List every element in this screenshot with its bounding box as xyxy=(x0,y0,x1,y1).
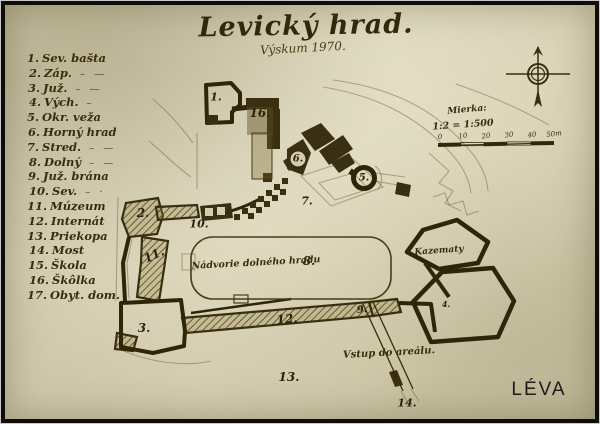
legend-item: 3.Juž.– — xyxy=(28,81,128,96)
map-label-13: 13. xyxy=(279,370,300,384)
legend-item-label: Sev. xyxy=(52,184,77,198)
legend-item-number: 4. xyxy=(29,95,41,109)
map-label-14: 14. xyxy=(397,397,416,410)
map-label-4: 4. xyxy=(442,299,450,309)
legend-item-label: Dolný xyxy=(44,155,81,169)
legend-item-label: Škôlka xyxy=(52,273,96,287)
map-label-16: 16. xyxy=(250,106,271,120)
map-label-3: 3. xyxy=(138,321,151,335)
legend-item-number: 8. xyxy=(29,155,41,169)
legend-item-label: Múzeum xyxy=(50,199,105,213)
legend-item: 12.Internát xyxy=(28,214,128,229)
bridge-14 xyxy=(389,370,403,387)
scale-tick: 30 xyxy=(504,130,514,139)
legend-item-number: 13. xyxy=(27,229,47,243)
wall-fragment xyxy=(395,182,411,197)
south-gate-9 xyxy=(369,299,401,316)
legend-item: 16.Škôlka xyxy=(29,273,128,288)
legend-item: 6.Horný hrad xyxy=(28,125,128,140)
legend-item-number: 9. xyxy=(28,169,40,183)
legend-item-number: 2. xyxy=(29,66,41,80)
legend-item-number: 1. xyxy=(27,51,39,65)
map-label-5: 5. xyxy=(359,173,369,184)
map-label-9: 9. xyxy=(356,304,368,316)
legend-item-label: Okr. veža xyxy=(42,110,101,124)
legend-item-number: 10. xyxy=(29,184,49,198)
scale-tick: 10 xyxy=(458,131,468,140)
legend-item-label: Stred. xyxy=(42,140,81,154)
scanned-plan-frame: Levický hrad. Výskum 1970. 1.Sev. bašta … xyxy=(0,0,600,424)
map-label-10: 10. xyxy=(189,218,208,231)
legend-item: 9.Juž. brána xyxy=(28,169,128,184)
legend-item-label: Sev. bašta xyxy=(42,51,106,65)
legend-item: 8.Dolný– — xyxy=(29,155,128,170)
scale-tick: 20 xyxy=(481,131,491,140)
legend-item-label: Obyt. dom. xyxy=(50,288,120,302)
legend-item-label: Most xyxy=(52,243,84,257)
legend-item-number: 3. xyxy=(28,81,40,95)
legend-item-number: 16. xyxy=(29,273,49,287)
legend-item-label: Juž. brána xyxy=(43,169,109,183)
legend-item-label: Vých. xyxy=(44,95,79,109)
legend-item-label: Škola xyxy=(51,258,87,272)
legend-item: 13.Priekopa xyxy=(27,229,128,244)
skolka-tail xyxy=(252,133,272,179)
plan-title: Levický hrad. xyxy=(198,9,413,44)
legend-item: 5.Okr. veža xyxy=(27,110,128,125)
legend-item: 4.Vých.– xyxy=(29,95,128,110)
legend-item-number: 15. xyxy=(28,258,48,272)
legend-item-number: 17. xyxy=(27,288,47,302)
legend-item-ditto: – · xyxy=(85,187,105,198)
plan-artwork: Levický hrad. Výskum 1970. 1.Sev. bašta … xyxy=(5,5,595,419)
legend-item: 1.Sev. bašta xyxy=(27,51,128,66)
scale-bar xyxy=(438,142,554,146)
map-label-7: 7. xyxy=(301,195,312,208)
legend-item-ditto: – — xyxy=(80,69,107,80)
legend-item-number: 5. xyxy=(27,110,39,124)
solid-structures xyxy=(200,98,411,387)
map-label-6: 6. xyxy=(293,154,303,165)
legend-item-number: 12. xyxy=(28,214,48,228)
excavated-wall-dashes xyxy=(234,173,288,220)
compass-rose-icon xyxy=(506,46,570,107)
legend-item-label: Horný hrad xyxy=(43,125,117,139)
legend-item: 2.Záp.– — xyxy=(29,66,128,81)
legend-item-label: Juž. xyxy=(43,81,67,95)
map-label-1: 1. xyxy=(210,91,221,104)
legend-item-number: 7. xyxy=(27,140,39,154)
legend-item-number: 14. xyxy=(29,243,49,257)
legend-item-number: 6. xyxy=(28,125,40,139)
map-label-12: 12. xyxy=(276,311,298,326)
legend-item-ditto: – — xyxy=(89,158,116,169)
legend-item-ditto: – xyxy=(87,98,95,109)
legend-item: 7.Stred.– — xyxy=(27,140,128,155)
legend-item: 17.Obyt. dom. xyxy=(27,288,128,303)
hatched-buildings xyxy=(115,198,401,351)
legend-item-label: Internát xyxy=(51,214,105,228)
map-label-2: 2. xyxy=(137,206,150,220)
scale-tick: 0 xyxy=(437,133,443,142)
legend-item-ditto: – — xyxy=(89,143,116,154)
aged-paper: Levický hrad. Výskum 1970. 1.Sev. bašta … xyxy=(5,5,595,419)
legend-item-label: Záp. xyxy=(44,66,72,80)
legend-item-ditto: – — xyxy=(75,84,102,95)
legend-item: 15.Škola xyxy=(28,258,128,273)
city-name: LÉVA xyxy=(511,379,566,401)
legend-item: 10.Sev.– · xyxy=(29,184,128,199)
scale-tick: 40 xyxy=(527,130,537,139)
legend-list: 1.Sev. bašta 2.Záp.– — 3.Juž.– — 4.Vých.… xyxy=(27,51,128,303)
legend-item-number: 11. xyxy=(27,199,47,213)
legend-item: 14.Most xyxy=(29,243,128,258)
legend-item-label: Priekopa xyxy=(50,229,108,243)
legend-item: 11.Múzeum xyxy=(27,199,128,214)
